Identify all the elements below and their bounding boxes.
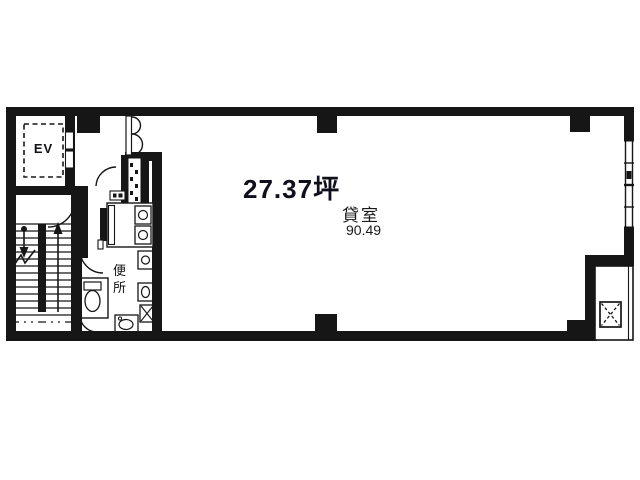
vent-fan-icon bbox=[110, 191, 125, 200]
toilet-bowl-icon bbox=[85, 291, 100, 312]
entrance-double-door bbox=[126, 116, 143, 155]
stair-stringer bbox=[38, 224, 46, 312]
elevator-label: EV bbox=[24, 141, 63, 156]
windows-right-wall bbox=[624, 140, 634, 228]
column-hall bbox=[77, 116, 100, 133]
walls bbox=[6, 107, 634, 341]
column-bottom-mid bbox=[315, 314, 337, 331]
column-top-mid bbox=[317, 116, 337, 133]
staircase bbox=[12, 222, 71, 327]
urinal-icon bbox=[138, 283, 153, 301]
stair-landing-marks bbox=[19, 320, 65, 327]
wall-top bbox=[8, 107, 634, 116]
elevator-door-panel bbox=[66, 151, 74, 168]
entrance-door-arc-upper bbox=[132, 117, 141, 134]
wall-ev-south bbox=[6, 186, 75, 195]
wall-left bbox=[6, 107, 16, 341]
entrance-door-arc-lower bbox=[132, 134, 143, 155]
kitchenette bbox=[107, 203, 153, 247]
wall-right-upper bbox=[624, 107, 634, 140]
toilet-tank-icon bbox=[84, 282, 101, 290]
elevator-door-panel bbox=[66, 132, 74, 149]
unit-area-label: 27.37坪 bbox=[243, 169, 340, 206]
wall-bay-west bbox=[585, 255, 595, 332]
corridor-door-arc bbox=[96, 167, 116, 186]
floor-plan: EV 27.37坪 貸室 90.49 便所 bbox=[0, 0, 640, 480]
stair-door-arc bbox=[48, 200, 75, 227]
toilet-label: 便所 bbox=[113, 263, 128, 297]
washbasin-icon bbox=[138, 251, 153, 269]
hand-basin-bowl-icon bbox=[119, 320, 133, 330]
room-area-value: 90.49 bbox=[346, 222, 381, 238]
entrance-door-frame bbox=[126, 116, 132, 155]
toilet-door-frame bbox=[98, 240, 103, 249]
wall-corridor-west bbox=[82, 186, 88, 258]
service-bay bbox=[595, 266, 633, 340]
plan-linework bbox=[0, 0, 640, 480]
wall-bay-step bbox=[567, 320, 585, 332]
column-top-right bbox=[570, 116, 590, 132]
wall-bay-top bbox=[585, 255, 634, 266]
washbasin-bowl-icon bbox=[142, 256, 150, 264]
pipe-shaft-duct bbox=[128, 158, 141, 204]
slop-sink-x-icon bbox=[141, 306, 153, 321]
basin-tap-icon bbox=[118, 317, 121, 320]
window-joint-mark bbox=[627, 171, 632, 179]
kitchenette-outline bbox=[107, 203, 153, 247]
urinal-bowl-icon bbox=[142, 287, 150, 298]
